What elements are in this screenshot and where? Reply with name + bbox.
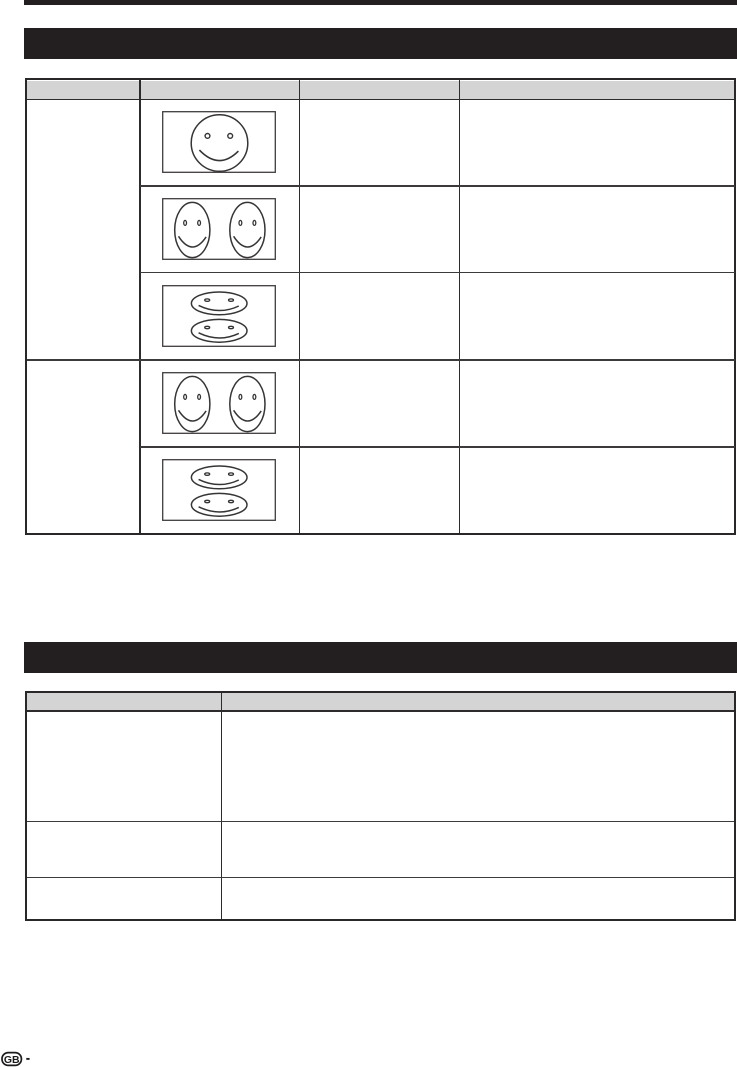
svg-text:GB: GB [4, 1054, 20, 1066]
